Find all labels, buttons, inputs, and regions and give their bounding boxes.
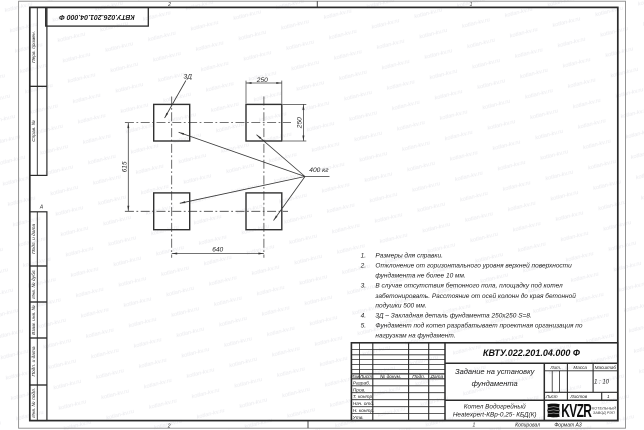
svg-text:фундамента: фундамента [472,379,518,388]
svg-text:1: 1 [607,394,610,399]
svg-text:фундамента не более 10 мм.: фундамента не более 10 мм. [375,272,466,280]
svg-text:1.: 1. [361,253,367,260]
svg-text:Фундамент под котел разрабатыв: Фундамент под котел разрабатывает проект… [375,322,582,330]
svg-text:В случае отсутствия бетонного: В случае отсутствия бетонного пола, площ… [375,281,563,289]
svg-text:250: 250 [256,77,268,84]
svg-text:№ докум.: № докум. [380,374,401,380]
svg-text:Пров.: Пров. [353,387,366,393]
svg-text:Дата: Дата [429,374,443,380]
svg-text:Справ. №: Справ. № [31,120,37,142]
svg-text:Лист: Лист [545,394,558,399]
svg-text:забетонировать. Расстояние от: забетонировать. Расстояние от осей колон… [374,292,576,300]
svg-text:Н. контр.: Н. контр. [353,408,375,414]
svg-text:КОТЕЛЬНЫЙ: КОТЕЛЬНЫЙ [592,406,616,410]
svg-text:Размеры для справки.: Размеры для справки. [375,252,443,260]
svg-text:Подп.: Подп. [412,374,425,380]
svg-text:ЗАВОД РЭП: ЗАВОД РЭП [593,411,615,415]
svg-text:Heatexpert-КВр-0,25- КБД(К): Heatexpert-КВр-0,25- КБД(К) [453,412,537,419]
svg-text:250: 250 [297,117,304,129]
svg-text:Подп. и дата: Подп. и дата [31,346,37,376]
svg-text:Лист: Лист [359,374,372,380]
svg-text:КВТУ.022.201.04.000 Ф: КВТУ.022.201.04.000 Ф [483,348,580,358]
svg-text:3Д: 3Д [184,74,193,81]
svg-text:Формат А3: Формат А3 [554,422,582,428]
svg-text:КВТУ.026.201.04.000 Ф: КВТУ.026.201.04.000 Ф [59,13,135,20]
svg-text:Листов: Листов [569,394,587,399]
svg-text:KVZR: KVZR [561,401,592,421]
svg-text:Перв. примен.: Перв. примен. [31,31,37,63]
svg-text:2: 2 [167,424,171,430]
svg-text:нагрузкам на фундамент.: нагрузкам на фундамент. [375,332,455,340]
svg-text:Т. контр.: Т. контр. [353,394,374,400]
svg-text:Масштаб: Масштаб [595,365,617,370]
svg-text:4.: 4. [361,313,367,320]
svg-text:Взам. инв. №: Взам. инв. № [31,305,37,335]
svg-text:3.: 3. [361,282,367,289]
svg-text:640: 640 [212,247,223,254]
svg-text:Инв. № подл.: Инв. № подл. [31,388,37,418]
svg-text:Задание на установку: Задание на установку [455,367,536,376]
svg-text:Инв. № дубл.: Инв. № дубл. [31,269,37,299]
svg-text:Котел Водогрейный: Котел Водогрейный [464,402,526,410]
svg-text:Копировал: Копировал [515,422,540,428]
svg-text:1: 1 [473,422,476,428]
svg-text:Нач. отд.: Нач. отд. [353,401,375,407]
svg-text:Подп. и дата: Подп. и дата [31,224,37,254]
svg-text:2.: 2. [360,263,367,270]
svg-text:5.: 5. [361,323,367,330]
svg-text:400 кг: 400 кг [309,167,329,174]
svg-text:3Д – Закладная деталь фундамен: 3Д – Закладная деталь фундамента 250х250… [375,312,532,320]
svg-text:А: А [39,204,44,210]
svg-text:1 : 10: 1 : 10 [594,379,610,385]
svg-text:Утв.: Утв. [353,415,364,421]
svg-text:Лит.: Лит. [549,365,561,370]
svg-text:Отклонение от горизонтального: Отклонение от горизонтального уровня вер… [375,262,572,270]
svg-text:Разраб.: Разраб. [353,380,370,386]
svg-text:615: 615 [122,161,129,172]
svg-text:Масса: Масса [573,365,587,370]
svg-text:подушки 500 мм.: подушки 500 мм. [375,302,426,310]
